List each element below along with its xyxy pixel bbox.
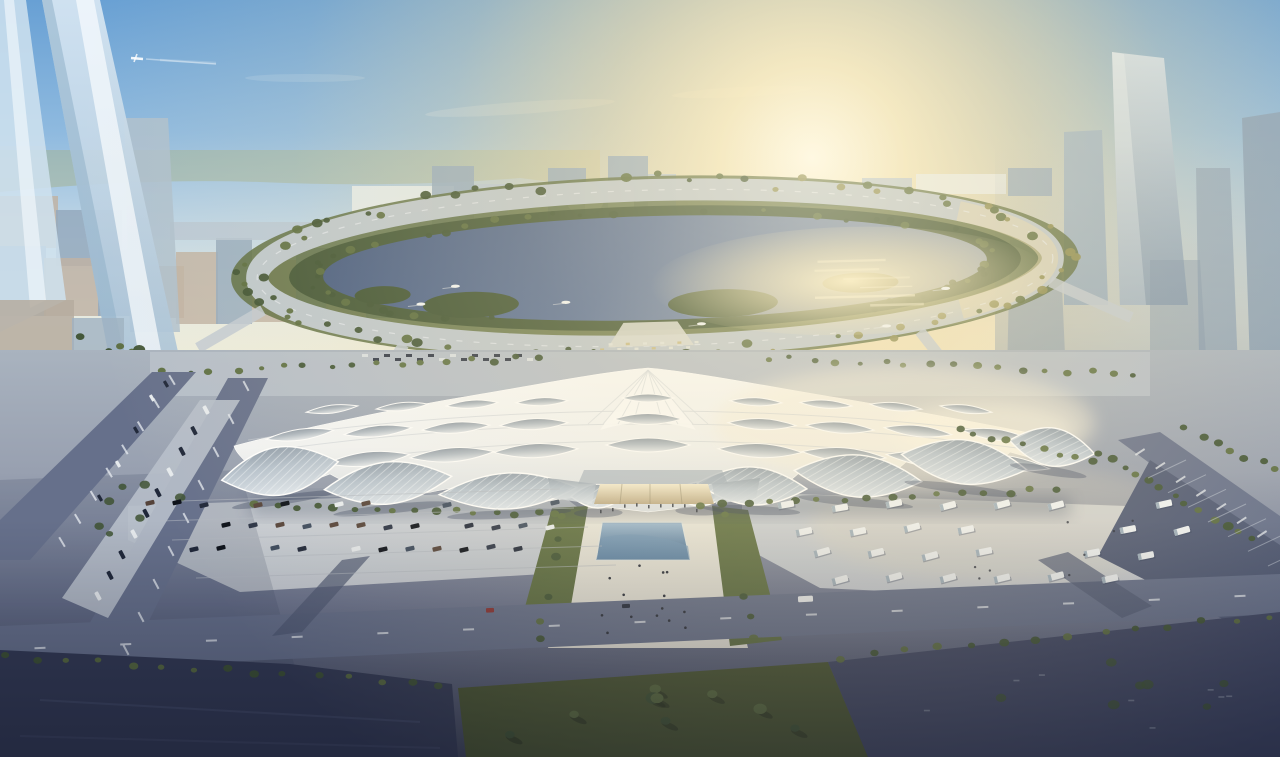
rendering-canvas: Aerial rendering of a lakeside exhibitio… <box>0 0 1280 757</box>
foreground-vignette <box>0 520 1280 757</box>
airplane-body <box>131 58 143 59</box>
aerial-rendering: Aerial rendering of a lakeside exhibitio… <box>0 0 1280 757</box>
